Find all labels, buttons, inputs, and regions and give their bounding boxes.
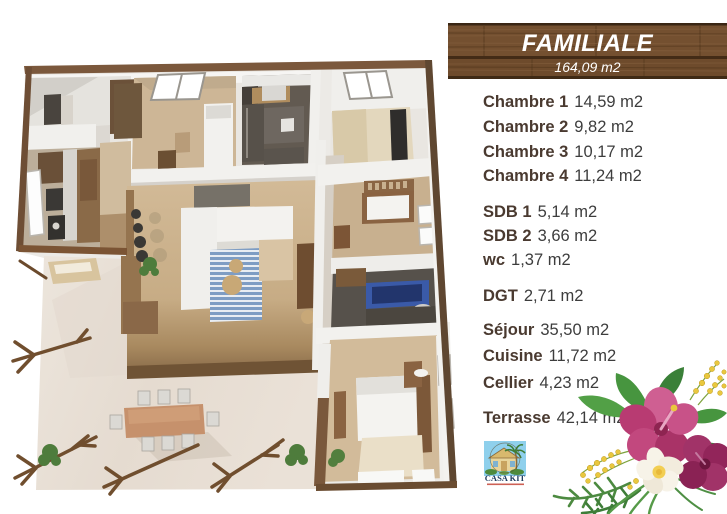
svg-text:CASA KIT: CASA KIT: [485, 473, 526, 483]
